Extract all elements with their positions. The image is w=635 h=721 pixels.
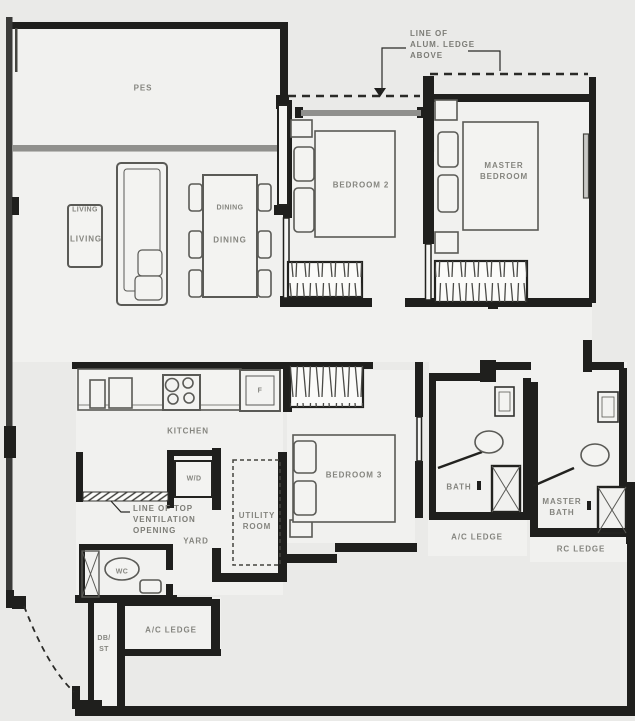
washer-dryer-label: W/D <box>187 474 202 485</box>
dining-chair <box>258 184 271 211</box>
wc-basin <box>140 580 161 593</box>
room-label-bedroom2: BEDROOM 2 <box>333 180 390 191</box>
pillow <box>294 481 316 515</box>
room-label-living: LIVING <box>72 205 98 216</box>
room-label-wc: WC <box>116 567 128 578</box>
bedside-table <box>435 100 457 120</box>
bedside-table <box>435 232 458 253</box>
bedside-table <box>291 120 312 137</box>
sink <box>90 380 105 408</box>
dining-chair <box>189 231 202 258</box>
master-bath-toilet <box>581 444 609 466</box>
room-label-kitchen: KITCHEN <box>167 426 209 437</box>
pillow <box>294 147 314 181</box>
dining-chair <box>189 270 202 297</box>
entry-door-swing-arc <box>24 606 74 692</box>
bath-basin <box>495 387 514 416</box>
room-label-dining: DINING <box>217 203 244 214</box>
room-label-dining: DINING <box>213 235 246 246</box>
dining-chair <box>258 270 271 297</box>
pillow <box>438 175 458 212</box>
room-label-ac-ledge-bottom: A/C LEDGE <box>145 625 197 636</box>
room-label-yard: YARD <box>183 536 209 547</box>
room-label-rc-ledge: RC LEDGE <box>557 544 606 555</box>
burner <box>184 393 194 403</box>
burner <box>166 379 179 392</box>
burner <box>168 394 178 404</box>
pillow <box>438 132 458 167</box>
room-label-master-bedroom: MASTER BEDROOM <box>480 160 528 182</box>
bedroom3-door-leaf <box>417 417 422 461</box>
room-label-pes: PES <box>134 83 153 94</box>
sofa-cushion <box>138 250 162 276</box>
dining-chair <box>258 231 271 258</box>
annotation-vent-opening: LINE OF TOP VENTILATION OPENING <box>133 503 196 536</box>
floor-plan: PES LIVING LIVING DINING DINING BEDROOM … <box>0 0 635 721</box>
burner <box>183 378 193 388</box>
sofa-cushion <box>135 276 162 300</box>
room-label-utility: UTILITY ROOM <box>239 510 276 532</box>
sink <box>109 378 132 408</box>
master-bath-basin <box>598 392 618 422</box>
room-label-living: LIVING <box>70 234 102 245</box>
room-label-db-st: DB/ ST <box>97 633 110 655</box>
room-label-master-bath: MASTER BATH <box>542 496 581 518</box>
fridge-label: F <box>258 386 263 397</box>
pillow <box>294 188 314 232</box>
pes-sliding-door <box>278 105 288 205</box>
master-bedroom-door-leaf <box>426 244 432 300</box>
room-label-bath: BATH <box>446 482 471 493</box>
dining-chair <box>189 184 202 211</box>
floor-plan-linework <box>0 0 635 721</box>
annotation-alum-ledge: LINE OF ALUM. LEDGE ABOVE <box>410 28 475 61</box>
bath-toilet <box>475 431 503 453</box>
pillow <box>294 441 316 473</box>
room-label-ac-ledge: A/C LEDGE <box>451 532 503 543</box>
room-label-bedroom3: BEDROOM 3 <box>326 470 383 481</box>
